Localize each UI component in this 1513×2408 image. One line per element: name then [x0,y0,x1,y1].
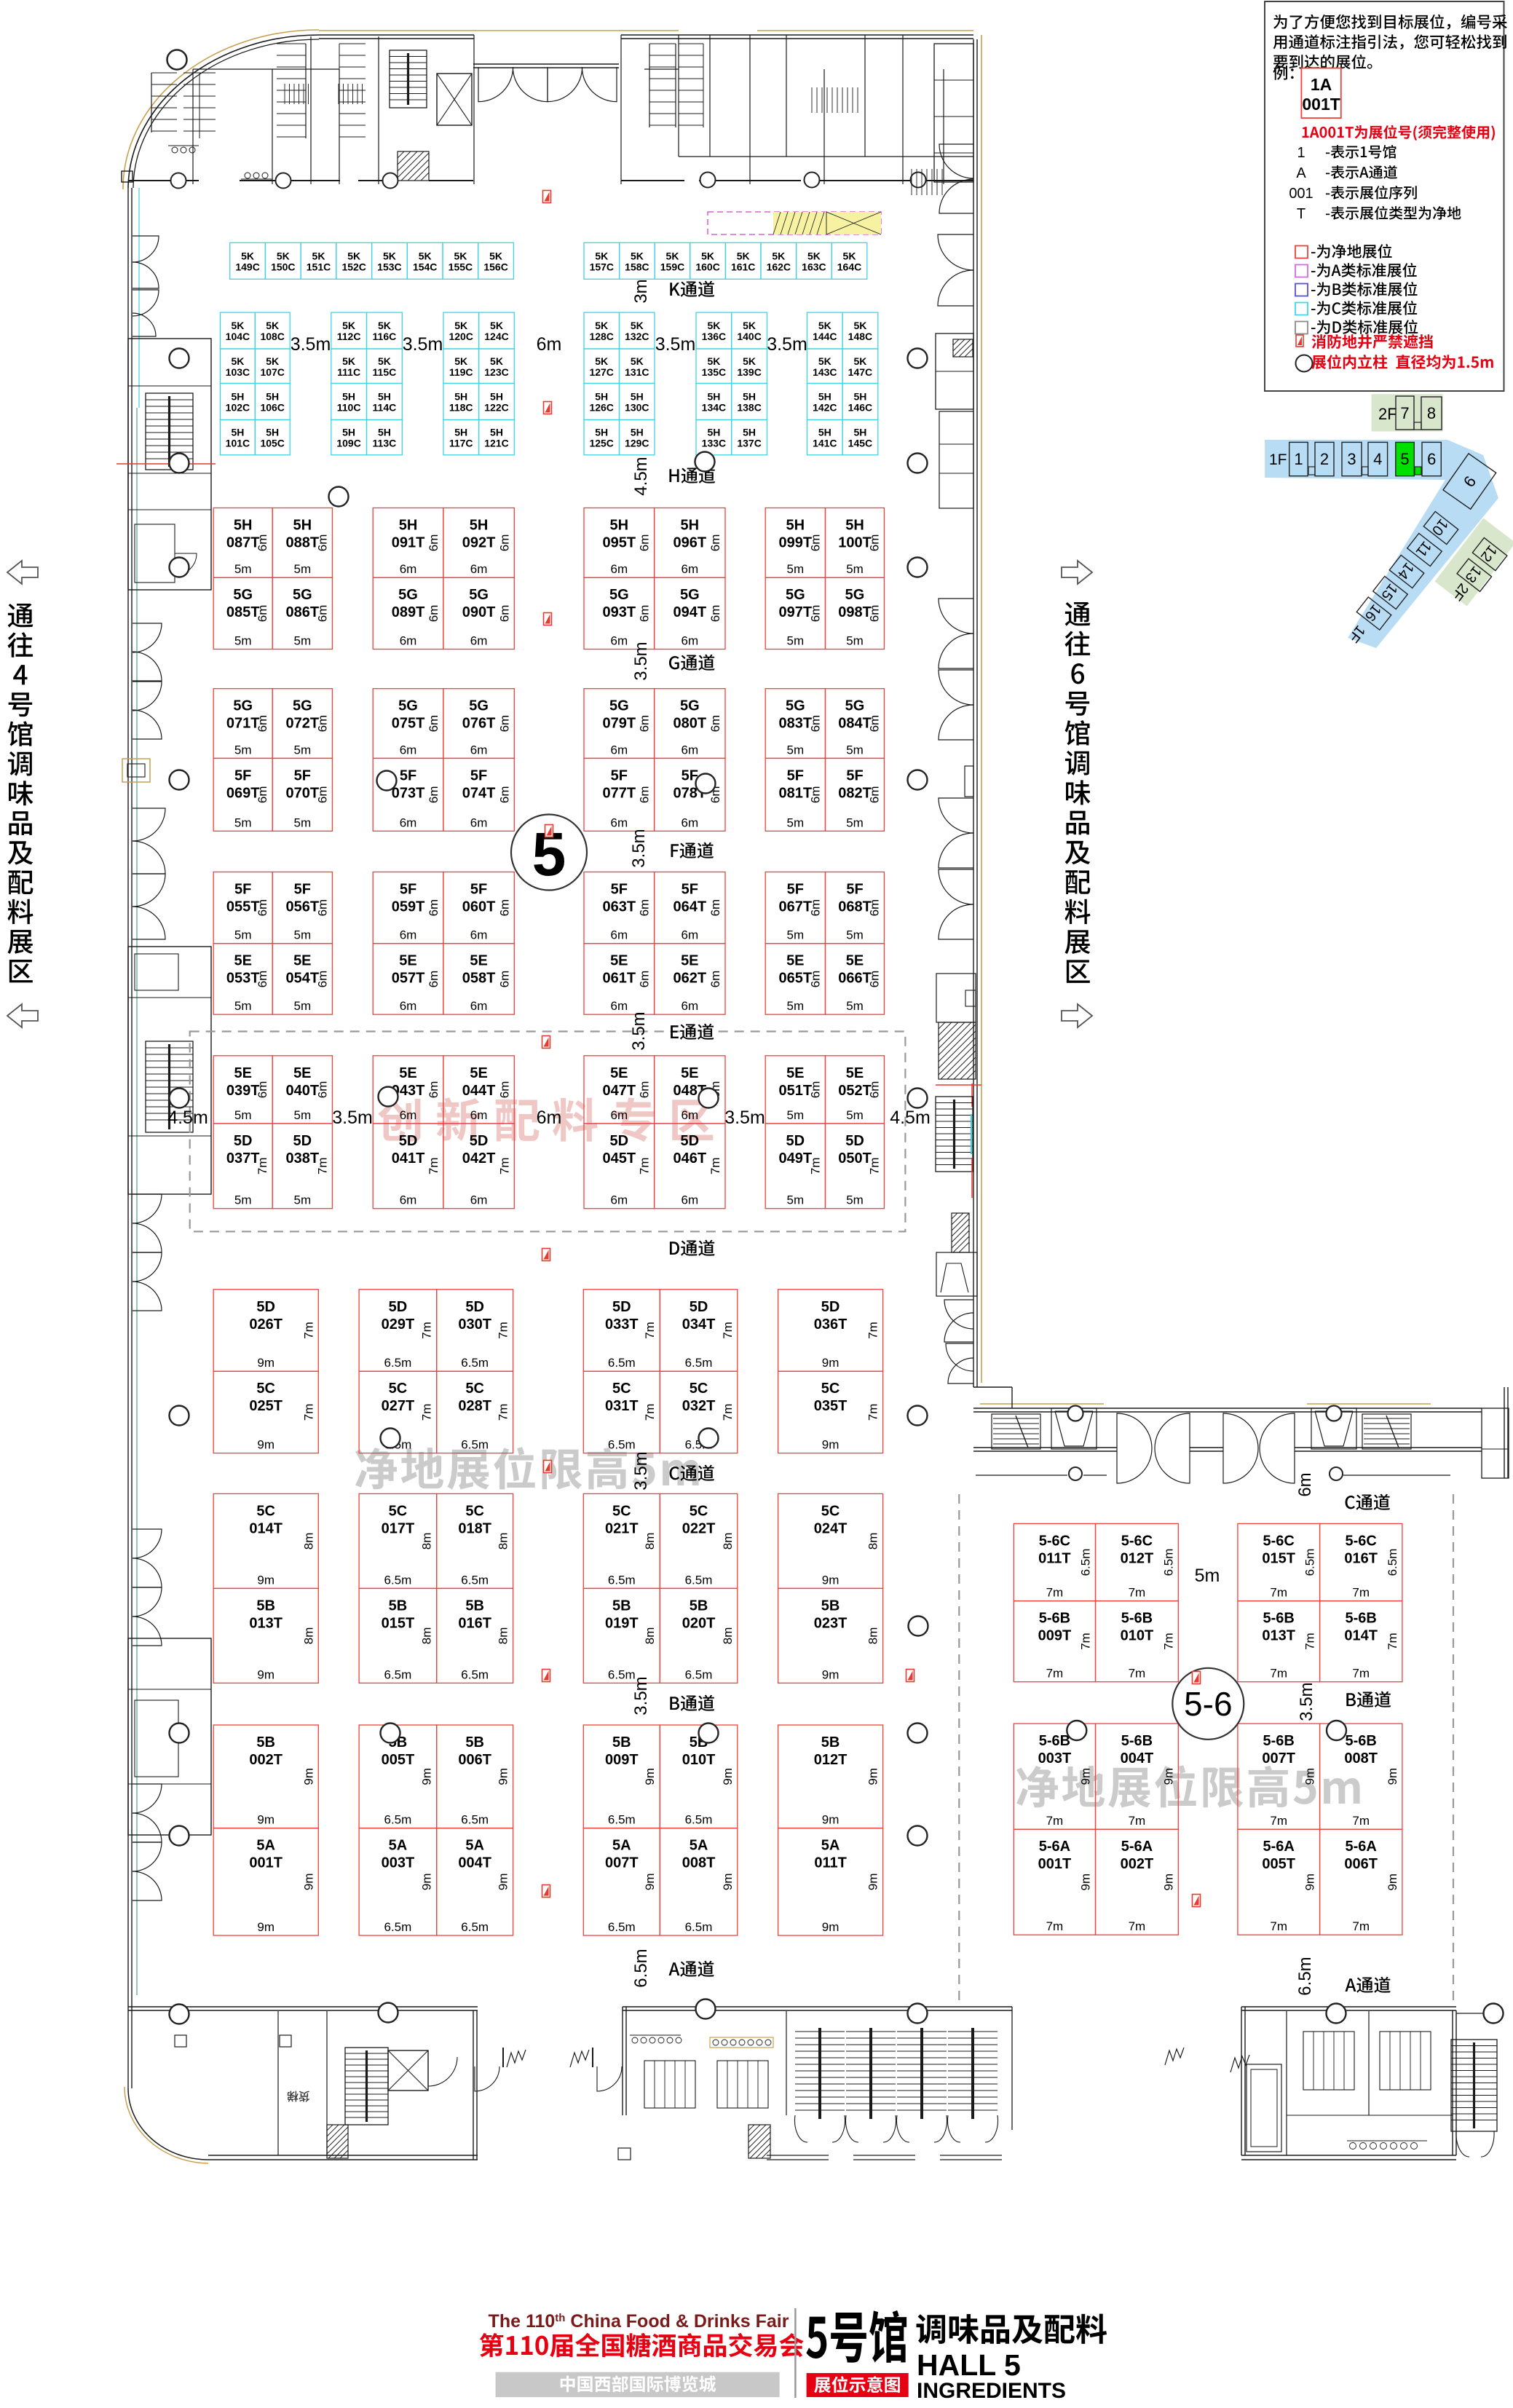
svg-text:5C: 5C [389,1381,408,1397]
svg-text:5-6B: 5-6B [1346,1733,1377,1749]
svg-text:5m: 5m [846,743,864,757]
svg-text:039T: 039T [226,1083,260,1099]
svg-text:5H: 5H [342,427,355,438]
svg-text:6m: 6m [256,786,269,803]
svg-text:6m: 6m [315,899,329,917]
svg-text:7m: 7m [1270,1814,1287,1828]
svg-text:6m: 6m [427,1081,441,1099]
svg-text:051T: 051T [779,1083,813,1099]
svg-text:5-6: 5-6 [1184,1685,1232,1723]
svg-text:146C: 146C [848,402,872,414]
svg-text:5F: 5F [470,882,487,898]
svg-text:6m: 6m [315,786,329,803]
svg-text:099T: 099T [779,535,813,551]
svg-text:6m: 6m [497,1081,511,1099]
svg-text:072T: 072T [286,716,320,732]
svg-text:9m: 9m [420,1768,434,1785]
svg-text:5G: 5G [293,698,312,714]
svg-text:6m: 6m [400,1193,417,1207]
svg-text:5m: 5m [846,816,864,829]
svg-text:125C: 125C [589,438,613,449]
svg-text:5m: 5m [293,816,311,829]
svg-text:152C: 152C [341,261,366,272]
svg-text:2: 2 [1320,450,1329,468]
svg-text:5D: 5D [681,1133,700,1149]
svg-text:5K: 5K [707,320,720,331]
svg-text:144C: 144C [813,331,837,342]
svg-text:7m: 7m [1129,1586,1146,1600]
svg-text:6m: 6m [681,562,698,576]
svg-text:5K: 5K [383,250,396,261]
svg-text:6m: 6m [315,605,329,623]
svg-text:082T: 082T [838,785,872,801]
svg-text:7m: 7m [1270,1919,1287,1933]
svg-text:6m: 6m [638,1081,652,1099]
svg-text:5E: 5E [234,1065,251,1081]
svg-text:6m: 6m [610,562,628,576]
svg-text:6m: 6m [400,928,417,942]
svg-text:5C: 5C [612,1503,631,1519]
svg-text:9m: 9m [1161,1874,1175,1891]
svg-text:8m: 8m [643,1627,657,1645]
svg-text:148C: 148C [848,331,872,342]
svg-text:7m: 7m [1161,1633,1175,1650]
svg-text:029T: 029T [382,1316,415,1333]
svg-text:5H: 5H [454,427,467,438]
svg-text:7m: 7m [497,1404,510,1421]
svg-text:9m: 9m [721,1768,735,1785]
svg-text:6m: 6m [867,899,881,917]
svg-text:5C: 5C [690,1503,708,1519]
svg-text:5m: 5m [234,816,252,829]
svg-text:055T: 055T [226,899,260,915]
svg-text:5m: 5m [786,816,804,829]
svg-text:088T: 088T [286,535,320,551]
svg-text:7m: 7m [866,1322,880,1339]
svg-text:6m: 6m [470,743,488,757]
svg-text:5K: 5K [419,250,432,261]
svg-text:103C: 103C [226,366,250,378]
svg-text:6.5m: 6.5m [384,1920,412,1934]
svg-text:7m: 7m [708,1157,722,1175]
svg-text:5-6B: 5-6B [1039,1733,1070,1749]
svg-text:5H: 5H [595,427,608,438]
svg-text:5m: 5m [234,1108,252,1122]
svg-text:063T: 063T [603,899,636,915]
svg-text:5-6B: 5-6B [1121,1733,1153,1749]
svg-text:5F: 5F [294,882,311,898]
svg-text:5E: 5E [786,1065,804,1081]
svg-text:031T: 031T [605,1398,639,1414]
svg-text:5m: 5m [786,743,804,757]
svg-text:5K: 5K [807,250,821,261]
svg-text:5E: 5E [681,1065,698,1081]
svg-text:5: 5 [1400,450,1409,468]
svg-text:9m: 9m [257,1573,274,1587]
svg-text:012T: 012T [814,1752,848,1768]
svg-text:6m: 6m [867,971,881,988]
svg-text:158C: 158C [625,261,649,272]
svg-text:5H: 5H [378,427,391,438]
svg-text:6m: 6m [537,1108,562,1128]
svg-text:7m: 7m [866,1404,880,1421]
svg-text:045T: 045T [603,1150,636,1167]
svg-text:5K: 5K [241,250,254,261]
svg-text:162C: 162C [767,261,791,272]
svg-text:5m: 5m [234,928,252,942]
svg-text:6m: 6m [809,534,823,552]
svg-text:6m: 6m [400,634,417,648]
svg-text:017T: 017T [382,1520,415,1536]
svg-text:087T: 087T [226,535,260,551]
svg-text:5K: 5K [266,320,279,331]
svg-text:5m: 5m [1195,1566,1220,1586]
svg-text:5K: 5K [737,250,750,261]
svg-text:5H: 5H [631,427,644,438]
svg-text:108C: 108C [260,331,284,342]
svg-text:001T: 001T [1302,95,1340,114]
svg-text:119C: 119C [449,366,473,378]
svg-text:3.5m: 3.5m [291,334,331,355]
svg-text:9m: 9m [822,1356,840,1370]
svg-text:7m: 7m [1079,1633,1093,1650]
svg-text:5B: 5B [256,1734,275,1750]
svg-text:5H: 5H [631,391,644,403]
svg-text:9m: 9m [866,1768,880,1785]
svg-text:7m: 7m [809,1157,823,1175]
svg-text:7m: 7m [643,1322,657,1339]
svg-text:6m: 6m [708,971,722,988]
svg-text:5A: 5A [612,1838,631,1854]
svg-text:5m: 5m [786,634,804,648]
svg-text:6m: 6m [470,1193,488,1207]
svg-text:5-6A: 5-6A [1346,1839,1377,1855]
svg-text:084T: 084T [838,716,872,732]
svg-text:6m: 6m [638,534,652,552]
svg-text:5G: 5G [609,698,629,714]
svg-text:038T: 038T [286,1150,320,1167]
svg-text:5D: 5D [612,1299,631,1315]
svg-text:5-6C: 5-6C [1263,1533,1295,1549]
svg-text:6m: 6m [315,534,329,552]
svg-text:022T: 022T [682,1520,716,1536]
svg-text:7m: 7m [1270,1586,1287,1600]
svg-text:5H: 5H [786,518,805,534]
svg-text:5m: 5m [293,634,311,648]
svg-text:5-6B: 5-6B [1039,1611,1070,1627]
svg-text:5D: 5D [389,1299,408,1315]
svg-text:6m: 6m [470,1108,488,1122]
svg-text:121C: 121C [484,438,508,449]
svg-text:7m: 7m [1303,1633,1317,1650]
svg-text:3.5m: 3.5m [631,1451,651,1490]
svg-text:030T: 030T [458,1316,491,1333]
svg-text:5F: 5F [611,882,628,898]
svg-text:5G: 5G [845,698,865,714]
svg-text:013T: 013T [249,1615,283,1631]
svg-text:5K: 5K [631,320,644,331]
svg-text:7m: 7m [315,1157,329,1175]
svg-text:101C: 101C [226,438,250,449]
svg-text:5B: 5B [465,1598,484,1614]
svg-text:1F: 1F [1269,451,1287,468]
svg-text:5G: 5G [786,698,805,714]
svg-text:7m: 7m [1352,1814,1370,1828]
svg-text:6m: 6m [427,715,441,733]
svg-text:5C: 5C [389,1503,408,1519]
svg-text:9m: 9m [257,1813,274,1827]
svg-text:5m: 5m [234,743,252,757]
svg-text:040T: 040T [286,1083,320,1099]
svg-text:6m: 6m [256,715,269,733]
svg-text:6.5m: 6.5m [384,1813,412,1827]
svg-text:6.5m: 6.5m [685,1920,713,1934]
svg-text:066T: 066T [838,971,872,987]
svg-text:009T: 009T [1038,1628,1072,1644]
svg-text:5G: 5G [469,698,489,714]
svg-text:HALL 5: HALL 5 [917,2348,1021,2382]
svg-text:3.5m: 3.5m [629,829,649,867]
svg-text:5m: 5m [293,999,311,1013]
svg-text:6m: 6m [537,334,562,355]
svg-text:7: 7 [1400,404,1409,422]
svg-text:5H: 5H [853,391,866,403]
svg-text:6m: 6m [400,743,417,757]
svg-text:004T: 004T [458,1855,491,1871]
svg-text:7m: 7m [1352,1667,1370,1681]
svg-text:9m: 9m [1161,1768,1175,1785]
svg-text:145C: 145C [848,438,872,449]
svg-text:5m: 5m [234,562,252,576]
svg-text:5m: 5m [786,1193,804,1207]
svg-text:154C: 154C [413,261,437,272]
svg-text:032T: 032T [682,1398,716,1414]
svg-text:5m: 5m [293,928,311,942]
svg-text:014T: 014T [249,1520,283,1536]
svg-text:8: 8 [1427,404,1436,422]
svg-text:155C: 155C [449,261,473,272]
svg-text:069T: 069T [226,785,260,801]
svg-text:147C: 147C [848,366,872,378]
svg-text:163C: 163C [802,261,826,272]
svg-text:8m: 8m [497,1533,510,1550]
svg-text:3.5m: 3.5m [403,334,443,355]
svg-text:5G: 5G [293,587,312,603]
svg-text:5C: 5C [465,1381,484,1397]
svg-text:034T: 034T [682,1316,716,1333]
svg-text:9m: 9m [301,1768,315,1785]
svg-text:015T: 015T [382,1615,415,1631]
svg-text:057T: 057T [392,971,425,987]
svg-text:9m: 9m [257,1667,274,1681]
svg-text:002T: 002T [1121,1856,1154,1872]
svg-text:5m: 5m [293,1108,311,1122]
svg-text:8m: 8m [866,1533,880,1550]
svg-text:6m: 6m [1295,1472,1315,1496]
svg-text:092T: 092T [462,535,496,551]
svg-text:6.5m: 6.5m [384,1573,412,1587]
svg-text:5D: 5D [610,1133,629,1149]
svg-text:007T: 007T [1262,1750,1295,1766]
svg-text:052T: 052T [838,1083,872,1099]
svg-text:120C: 120C [449,331,473,342]
svg-text:6.5m: 6.5m [685,1813,713,1827]
svg-text:8m: 8m [643,1533,657,1550]
svg-text:5G: 5G [845,587,865,603]
svg-text:4.5m: 4.5m [631,457,651,495]
svg-text:5K: 5K [701,250,714,261]
svg-text:044T: 044T [462,1083,496,1099]
svg-text:5F: 5F [846,767,863,783]
svg-text:9m: 9m [822,1813,840,1827]
svg-text:070T: 070T [286,785,320,801]
svg-text:5H: 5H [231,391,244,403]
svg-text:5C: 5C [821,1503,840,1519]
svg-text:6m: 6m [256,971,269,988]
svg-text:5F: 5F [846,882,863,898]
svg-text:3: 3 [1347,450,1356,468]
svg-text:164C: 164C [837,261,861,272]
svg-text:014T: 014T [1344,1628,1378,1644]
svg-text:7m: 7m [721,1322,735,1339]
svg-text:6.5m: 6.5m [461,1356,489,1370]
svg-text:3.5m: 3.5m [631,1676,651,1715]
svg-text:5K: 5K [818,355,831,367]
svg-text:5D: 5D [845,1133,864,1149]
svg-text:6m: 6m [470,634,488,648]
svg-text:076T: 076T [462,716,496,732]
svg-text:006T: 006T [458,1752,491,1768]
svg-text:5K: 5K [454,250,467,261]
svg-text:3.5m: 3.5m [631,642,651,680]
svg-text:035T: 035T [814,1398,848,1414]
svg-text:9m: 9m [257,1356,274,1370]
svg-text:9m: 9m [1386,1768,1399,1785]
svg-text:5H: 5H [342,391,355,403]
svg-text:6.5m: 6.5m [461,1438,489,1452]
svg-text:5B: 5B [256,1598,275,1614]
svg-text:6.5m: 6.5m [1386,1549,1399,1576]
svg-text:3.5m: 3.5m [767,334,807,355]
svg-text:123C: 123C [484,366,508,378]
svg-text:5H: 5H [399,518,418,534]
svg-text:6m: 6m [315,1081,329,1099]
svg-text:025T: 025T [249,1398,283,1414]
svg-text:3.5m: 3.5m [629,1011,649,1050]
svg-text:5H: 5H [818,391,831,403]
svg-text:5K: 5K [595,320,608,331]
svg-text:7m: 7m [721,1404,735,1421]
svg-text:6m: 6m [867,534,881,552]
svg-text:7m: 7m [1270,1667,1287,1681]
svg-text:9m: 9m [1386,1874,1399,1891]
svg-text:5H: 5H [595,391,608,403]
svg-text:5G: 5G [398,587,418,603]
svg-text:6m: 6m [681,634,698,648]
svg-text:5D: 5D [821,1299,840,1315]
svg-text:133C: 133C [702,438,726,449]
svg-text:6m: 6m [638,786,652,803]
svg-text:6m: 6m [427,534,441,552]
svg-text:008T: 008T [682,1855,716,1871]
svg-text:3.5m: 3.5m [655,334,696,355]
svg-text:5H: 5H [266,427,279,438]
svg-text:9m: 9m [822,1573,840,1587]
svg-text:8m: 8m [721,1533,735,1550]
svg-text:5B: 5B [612,1734,631,1750]
svg-text:1: 1 [1294,450,1303,468]
svg-text:090T: 090T [462,604,496,620]
svg-text:6m: 6m [497,534,511,552]
svg-text:5D: 5D [399,1133,418,1149]
svg-text:114C: 114C [373,402,397,414]
svg-text:7m: 7m [1129,1814,1146,1828]
svg-text:140C: 140C [737,331,761,342]
svg-text:9m: 9m [497,1768,510,1785]
svg-text:013T: 013T [1262,1628,1295,1644]
svg-text:065T: 065T [779,971,813,987]
svg-text:157C: 157C [590,261,614,272]
svg-text:6m: 6m [638,715,652,733]
svg-text:9m: 9m [1303,1874,1317,1891]
svg-text:159C: 159C [660,261,684,272]
svg-text:5G: 5G [469,587,489,603]
svg-text:033T: 033T [605,1316,639,1333]
svg-text:5H: 5H [707,427,720,438]
svg-text:7m: 7m [638,1157,652,1175]
svg-text:077T: 077T [603,785,636,801]
svg-text:5F: 5F [682,882,698,898]
svg-text:156C: 156C [483,261,507,272]
svg-text:9m: 9m [822,1920,840,1934]
svg-text:5A: 5A [690,1838,708,1854]
svg-text:004T: 004T [1121,1750,1154,1766]
svg-text:5H: 5H [266,391,279,403]
svg-text:5H: 5H [490,427,503,438]
svg-text:081T: 081T [779,785,813,801]
svg-text:5K: 5K [772,250,785,261]
svg-text:5F: 5F [787,882,804,898]
svg-text:INGREDIENTS: INGREDIENTS [917,2379,1066,2403]
svg-text:019T: 019T [605,1615,639,1631]
svg-text:6m: 6m [400,999,417,1013]
svg-text:6m: 6m [638,605,652,623]
svg-text:6.5m: 6.5m [631,1949,651,1987]
svg-text:109C: 109C [336,438,360,449]
svg-text:7m: 7m [1129,1667,1146,1681]
svg-text:5-6C: 5-6C [1039,1533,1070,1549]
svg-text:6m: 6m [809,786,823,803]
svg-text:6m: 6m [315,715,329,733]
svg-text:5D: 5D [465,1299,484,1315]
svg-text:6m: 6m [610,816,628,829]
svg-text:6.5m: 6.5m [461,1573,489,1587]
svg-text:5E: 5E [293,953,311,969]
svg-text:6m: 6m [708,899,722,917]
svg-text:7m: 7m [497,1322,510,1339]
svg-text:5K: 5K [454,320,467,331]
svg-text:005T: 005T [382,1752,415,1768]
svg-text:041T: 041T [392,1150,425,1167]
svg-text:9m: 9m [1079,1874,1093,1891]
svg-text:153C: 153C [377,261,401,272]
svg-text:6m: 6m [256,605,269,623]
svg-text:003T: 003T [1038,1750,1072,1766]
svg-text:056T: 056T [286,899,320,915]
svg-text:6m: 6m [497,605,511,623]
svg-text:037T: 037T [226,1150,260,1167]
svg-text:137C: 137C [737,438,761,449]
